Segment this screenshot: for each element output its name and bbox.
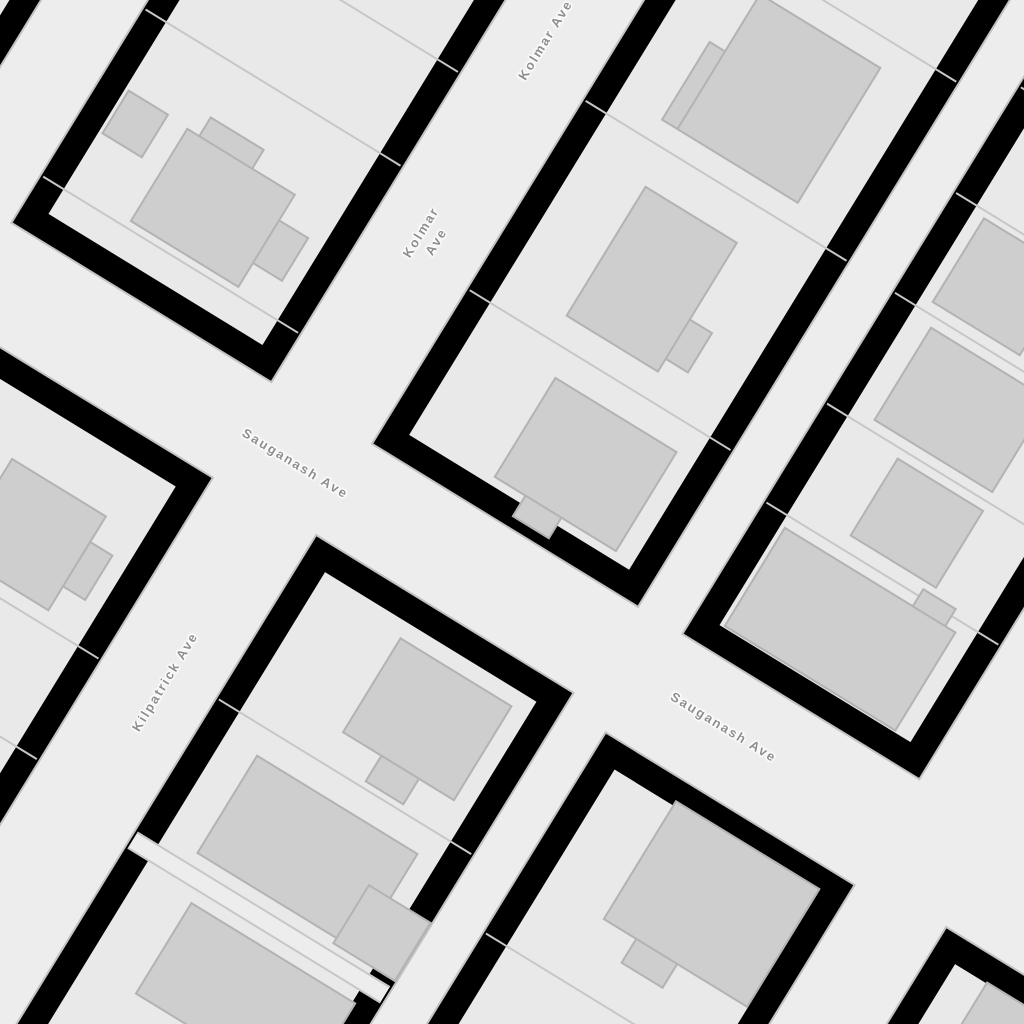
street-label-kilpatrick: Kilpatrick Ave <box>128 629 202 735</box>
street-label-text: Kilpatrick Ave <box>128 629 202 735</box>
street-label-sauganash-1: Sauganash Ave <box>239 424 352 503</box>
street-label-text: Sauganash Ave <box>667 688 780 767</box>
street-label-kolmar-1: Kolmar Ave <box>514 0 577 83</box>
street-label-text: Kolmar Ave <box>514 0 577 83</box>
street-label-sauganash-2: Sauganash Ave <box>667 688 780 767</box>
map-canvas: Kolmar AveKolmarAveSauganash AveKilpatri… <box>0 0 1024 1024</box>
street-label-kolmar-2: KolmarAve <box>399 203 459 270</box>
street-label-text: Sauganash Ave <box>239 424 352 503</box>
map-viewport[interactable]: Kolmar AveKolmarAveSauganash AveKilpatri… <box>0 0 1024 1024</box>
